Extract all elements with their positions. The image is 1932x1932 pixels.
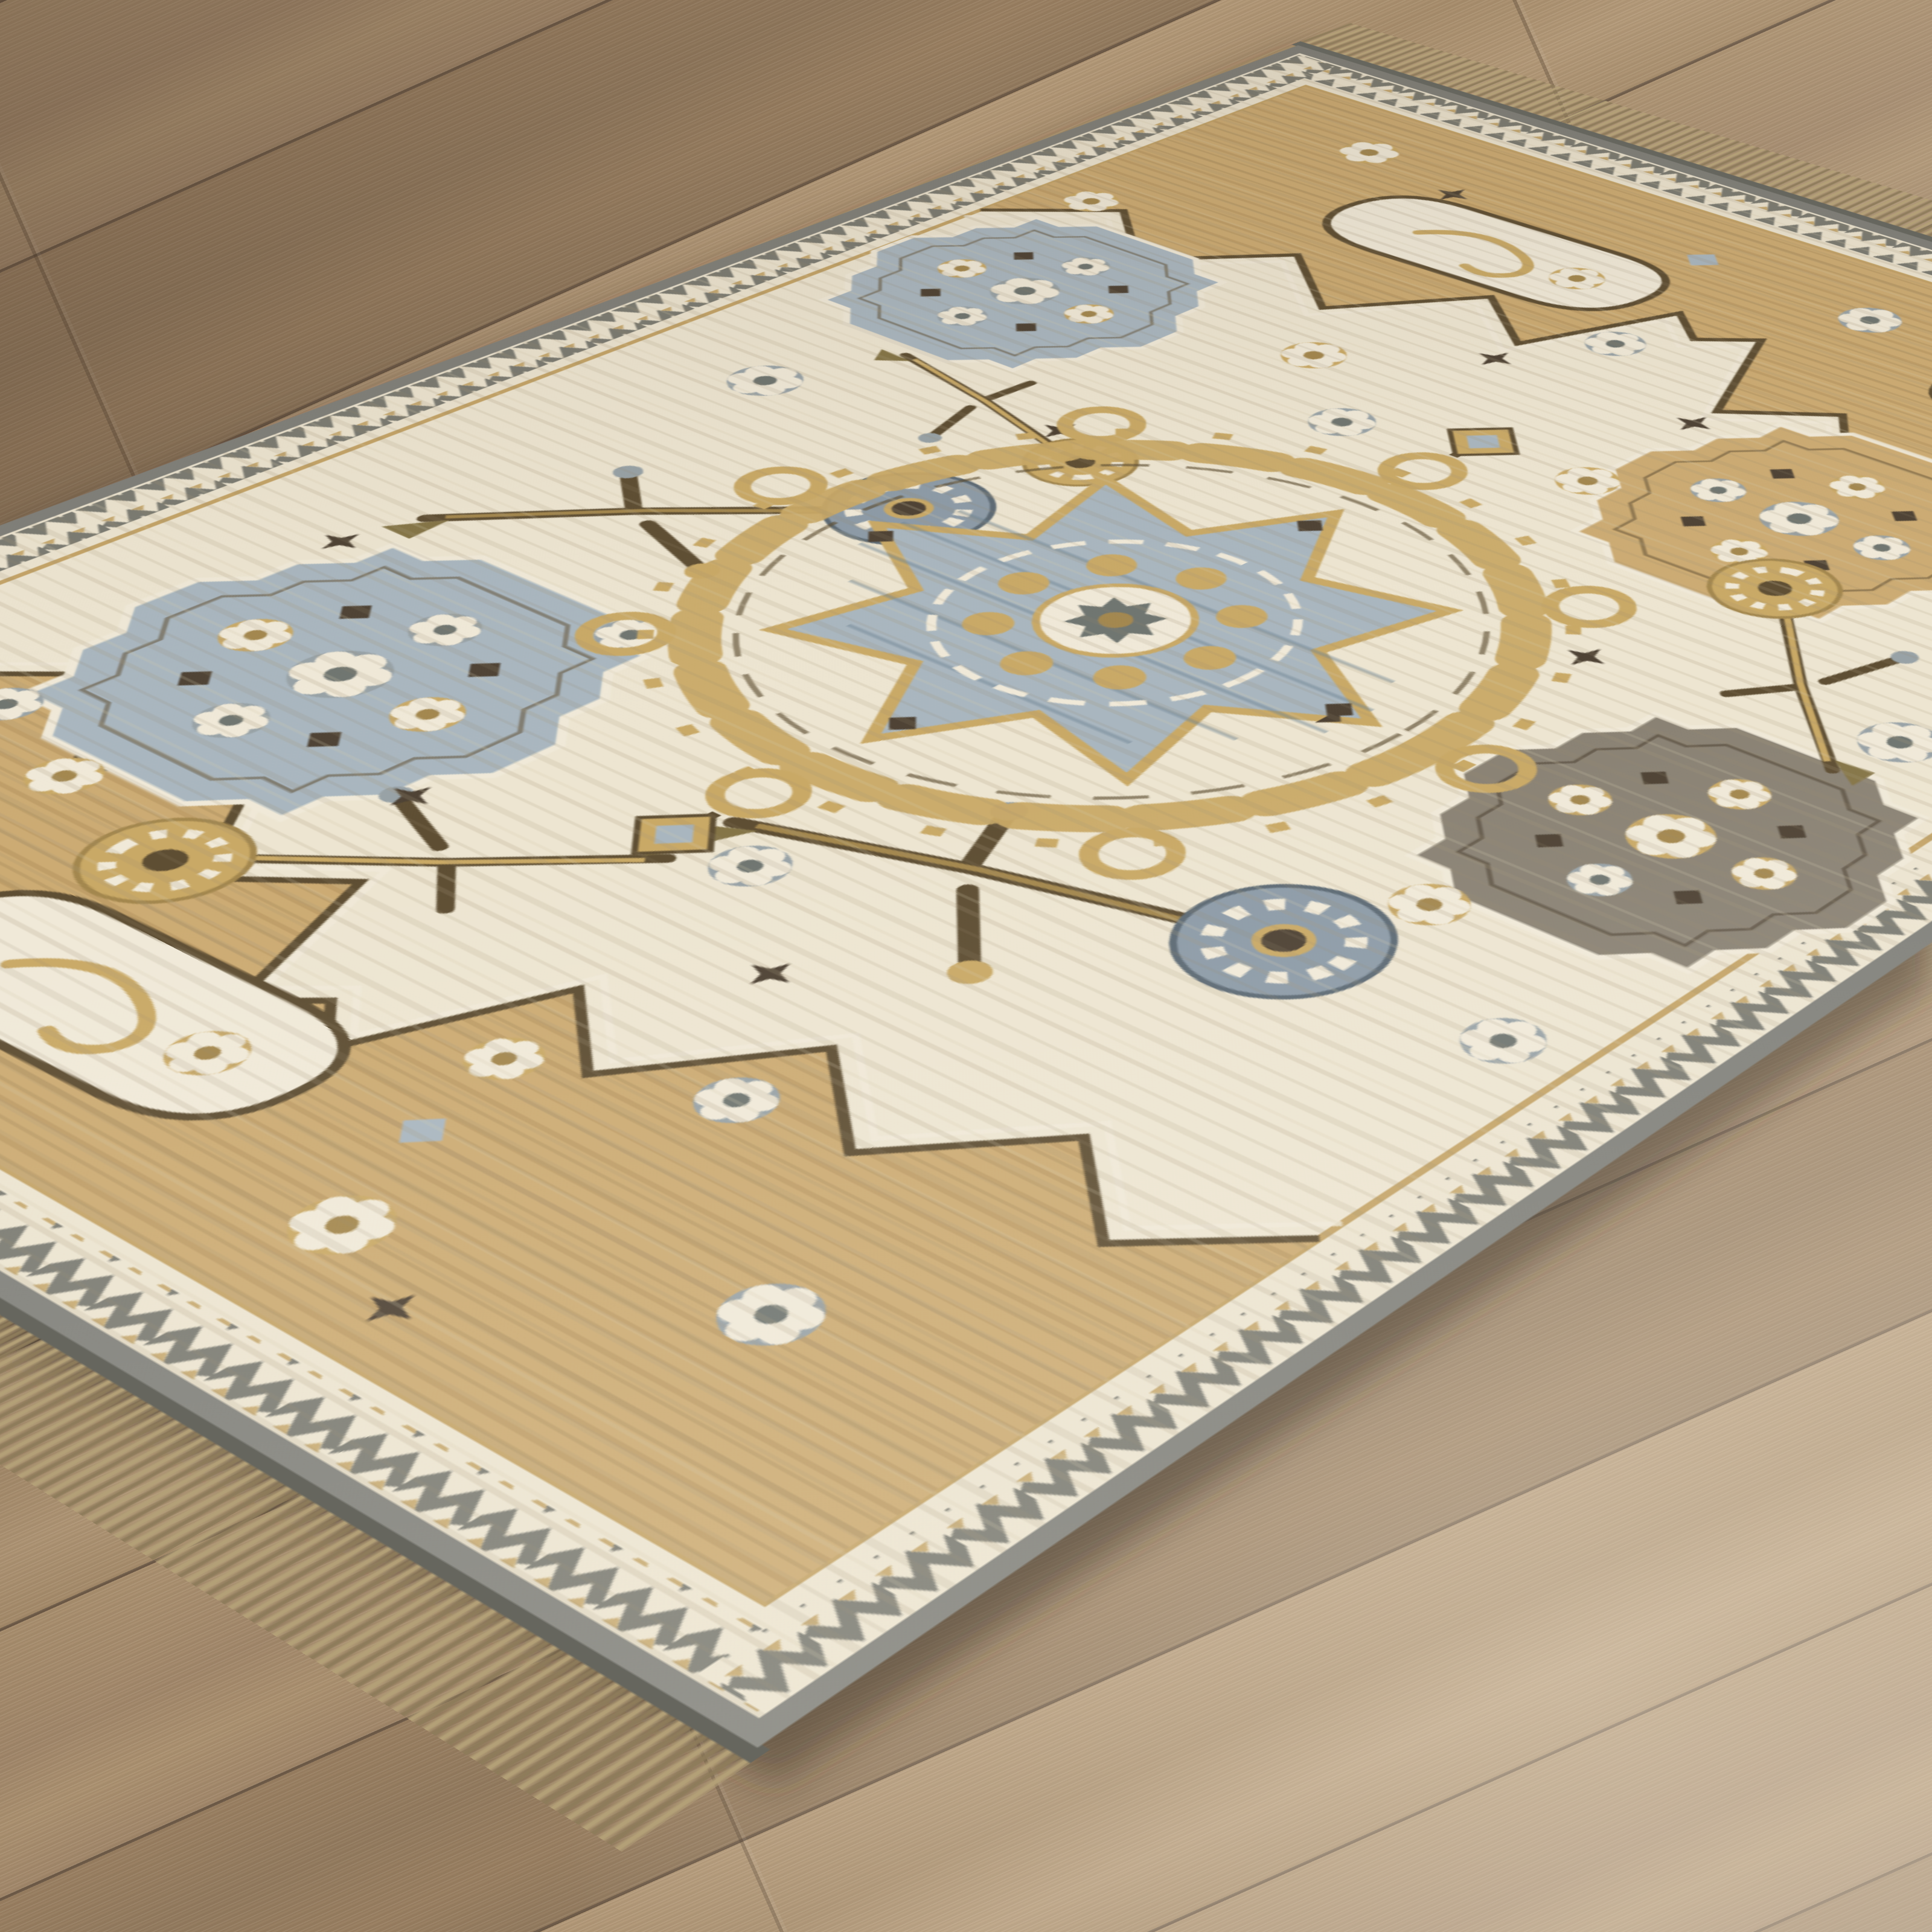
photo-scene <box>0 0 1932 1932</box>
